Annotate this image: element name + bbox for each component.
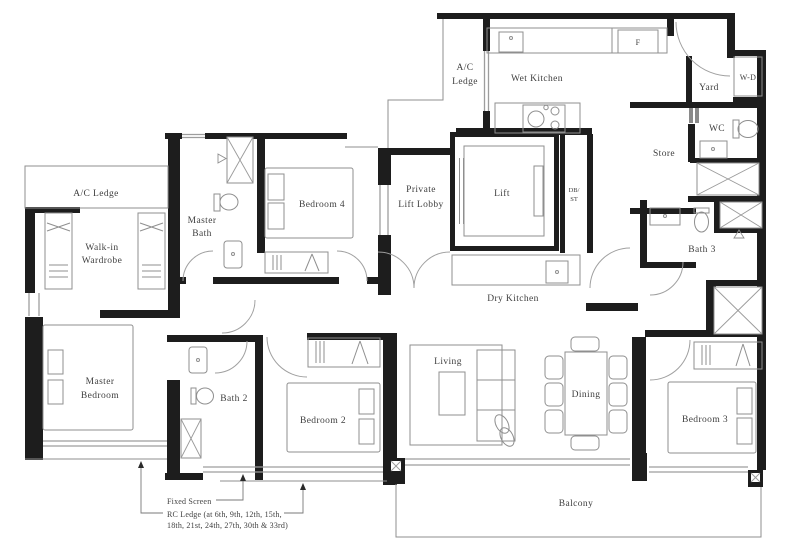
label-bath2: Bath 2 bbox=[220, 394, 247, 404]
shower-icon bbox=[720, 202, 762, 228]
toilet-icon bbox=[214, 194, 220, 211]
column-icon bbox=[391, 461, 401, 471]
label-bedroom2: Bedroom 2 bbox=[300, 416, 346, 426]
shower-icon bbox=[697, 163, 759, 195]
coffee-table-icon bbox=[439, 372, 465, 415]
shower-icon bbox=[227, 137, 253, 183]
column-icon bbox=[751, 473, 760, 482]
label-db-st: DB/ bbox=[569, 187, 580, 194]
wardrobe-icon bbox=[138, 213, 165, 289]
label-ac-ledge-top: A/C bbox=[456, 63, 473, 73]
label-private-lift-lobby: Private bbox=[406, 185, 436, 195]
label-db-st: ST bbox=[570, 196, 578, 203]
wardrobe-icon bbox=[265, 252, 328, 273]
label-walk-in-wardrobe: Wardrobe bbox=[82, 256, 122, 266]
label-walk-in-wardrobe: Walk-in bbox=[85, 243, 118, 253]
balcony-outline bbox=[396, 484, 761, 537]
label-rc-ledge: 18th, 21st, 24th, 27th, 30th & 33rd) bbox=[167, 521, 288, 530]
chair-icon bbox=[609, 410, 627, 433]
toilet-icon bbox=[191, 388, 196, 404]
label-lift: Lift bbox=[494, 188, 510, 199]
label-bedroom3: Bedroom 3 bbox=[682, 415, 728, 425]
sink-icon bbox=[224, 241, 242, 268]
label-dry-kitchen: Dry Kitchen bbox=[487, 294, 539, 304]
chair-icon bbox=[609, 383, 627, 406]
chair-icon bbox=[545, 383, 563, 406]
label-fridge: F bbox=[636, 38, 641, 47]
chair-icon bbox=[571, 337, 599, 351]
kitchen-sink-icon bbox=[546, 261, 568, 283]
chair-icon bbox=[545, 410, 563, 433]
label-master-bath: Bath bbox=[192, 229, 212, 239]
label-living: Living bbox=[434, 357, 462, 367]
sink-icon bbox=[700, 141, 727, 158]
label-wet-kitchen: Wet Kitchen bbox=[511, 74, 563, 84]
triangle-marker-icon bbox=[218, 154, 226, 163]
label-balcony: Balcony bbox=[559, 499, 593, 509]
floor-plan-page: A/C Ledge Walk-in Wardrobe Master Bath B… bbox=[0, 0, 788, 559]
chair-icon bbox=[545, 356, 563, 379]
label-bath3: Bath 3 bbox=[688, 245, 715, 255]
shower-icon bbox=[181, 419, 201, 458]
walls bbox=[25, 13, 766, 485]
label-master-bedroom: Bedroom bbox=[81, 391, 119, 401]
label-store: Store bbox=[653, 149, 675, 159]
master-bath-fixtures bbox=[214, 137, 253, 268]
label-fixed-screen: Fixed Screen bbox=[167, 497, 211, 506]
ac-ledge-box bbox=[714, 287, 762, 334]
chair-icon bbox=[609, 356, 627, 379]
bath2-fixtures bbox=[181, 347, 214, 458]
label-dining: Dining bbox=[572, 390, 601, 400]
label-ac-ledge-top: Ledge bbox=[452, 77, 478, 87]
label-wc: WC bbox=[709, 124, 725, 134]
dry-kitchen-counter bbox=[452, 255, 580, 285]
label-yard: Yard bbox=[699, 83, 719, 93]
label-private-lift-lobby: Lift Lobby bbox=[398, 199, 443, 210]
label-ac-ledge-left: A/C Ledge bbox=[73, 189, 119, 199]
label-washer-dryer: W-D bbox=[740, 73, 756, 82]
sliding-door-icon bbox=[689, 108, 699, 123]
label-master-bedroom: Master bbox=[86, 377, 115, 387]
ac-ledge-top-outline bbox=[345, 19, 443, 148]
wardrobe-icon bbox=[694, 342, 762, 369]
annotation-leaders bbox=[138, 461, 306, 513]
label-rc-ledge: RC Ledge (at 6th, 9th, 12th, 15th, bbox=[167, 510, 282, 519]
kitchen-sink-icon bbox=[499, 32, 523, 52]
annotation-labels: Fixed Screen RC Ledge (at 6th, 9th, 12th… bbox=[167, 497, 288, 530]
wardrobe-icon bbox=[308, 338, 380, 367]
bedroom4-furniture bbox=[265, 168, 353, 273]
bedroom2-furniture bbox=[287, 338, 380, 452]
label-bedroom4: Bedroom 4 bbox=[299, 200, 345, 210]
bedroom3-furniture bbox=[668, 342, 762, 453]
wardrobe-icon bbox=[45, 213, 72, 289]
sink-icon bbox=[189, 347, 207, 373]
wc-fixtures bbox=[697, 120, 759, 195]
label-master-bath: Master bbox=[188, 216, 217, 226]
sofa-icon bbox=[477, 350, 517, 449]
chair-icon bbox=[571, 436, 599, 450]
ac-ledge-left-outline bbox=[25, 166, 168, 208]
living-furniture bbox=[410, 345, 517, 449]
floor-plan-canvas: A/C Ledge Walk-in Wardrobe Master Bath B… bbox=[0, 0, 788, 559]
